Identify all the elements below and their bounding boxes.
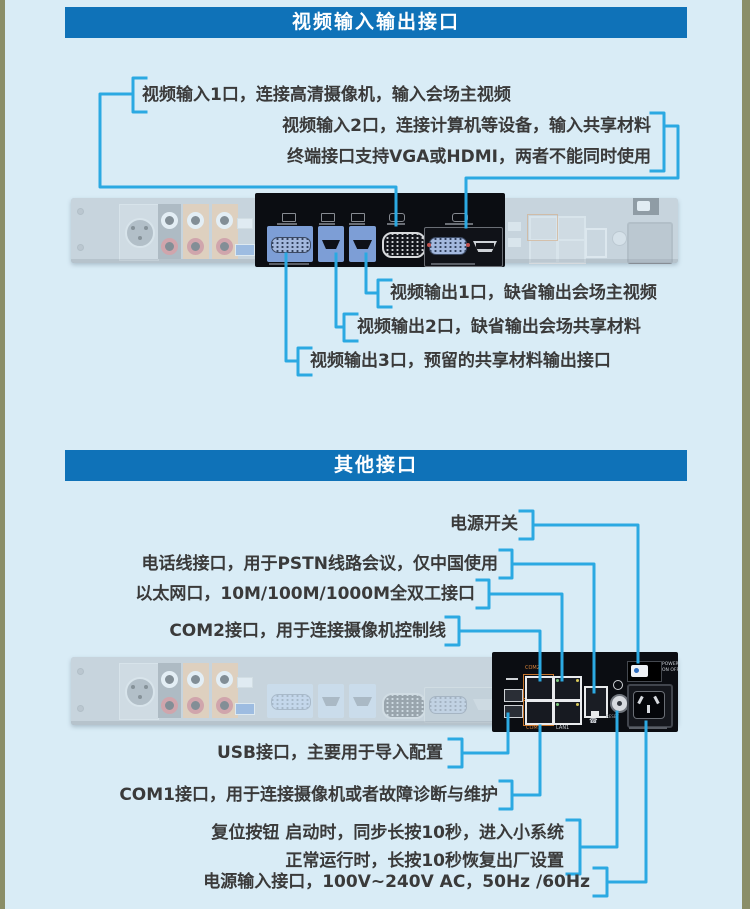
callout-label-ethernet: 以太网口，10M/100M/1000M全双工接口	[135, 584, 475, 604]
video-in-group	[424, 227, 503, 267]
vga-port-icon	[271, 237, 311, 253]
prong	[653, 696, 659, 704]
port-micro-label	[629, 727, 667, 729]
link-led	[556, 679, 559, 682]
rear-panel-photo-1	[71, 198, 678, 263]
other-io-highlight-block: COM2 COM1 LAN1 ☎ RESET	[492, 652, 678, 732]
bracket-power-input	[594, 868, 607, 896]
power-switch-icon	[627, 661, 662, 682]
lan-rj45-port-icon	[553, 676, 582, 701]
line-video-out-3	[286, 254, 298, 361]
rj11-phone-port-icon	[584, 686, 608, 718]
callout-label-usb: USB接口，主要用于导入配置	[217, 743, 443, 763]
callout-label-video-in-2-line2: 终端接口支持VGA或HDMI，两者不能同时使用	[282, 142, 651, 173]
rj11-tab	[591, 711, 599, 716]
rj45-port-icon	[553, 700, 582, 725]
lan-port-label: LAN1	[556, 725, 569, 731]
left-edge-stripe	[0, 0, 5, 909]
callout-label-video-out-1: 视频输出1口，缺省输出会场主视频	[390, 283, 657, 303]
usb-port-icon	[504, 689, 523, 702]
vga-screw	[427, 243, 431, 247]
display-icon	[282, 213, 296, 222]
power-inlet-icon	[627, 684, 673, 728]
hdmi-out-tile-1	[318, 226, 344, 262]
prong	[637, 696, 643, 704]
bracket-video-in-2	[651, 113, 664, 171]
display-icon	[321, 213, 335, 222]
hdmi-out-tile-2	[349, 226, 376, 262]
rocker-dot	[634, 668, 639, 673]
port-micro-label	[431, 263, 475, 265]
camera-icon	[389, 213, 405, 222]
hdmi-port-icon	[353, 240, 372, 249]
bracket-com2	[446, 617, 459, 645]
reset-dot	[617, 701, 622, 706]
bracket-reset	[567, 820, 580, 874]
com2-rj45-port-icon	[525, 676, 554, 701]
callout-label-video-in-2: 视频输入2口，连接计算机等设备，输入共享材料 终端接口支持VGA或HDMI，两者…	[282, 111, 651, 173]
vga-screw	[466, 243, 470, 247]
vga-in-port-icon	[429, 237, 467, 255]
port-micro-label	[269, 263, 309, 265]
reset-label: RESET	[606, 714, 619, 720]
com2-port-label: COM2	[525, 665, 540, 671]
section1-header: 视频输入输出接口	[65, 7, 687, 38]
hdmi-in-port-icon	[473, 241, 497, 252]
activity-led	[576, 703, 579, 706]
callout-label-video-out-3: 视频输出3口，预留的共享材料输出接口	[310, 351, 611, 371]
line-reset	[581, 712, 617, 847]
rocker	[631, 665, 648, 677]
activity-led	[576, 679, 579, 682]
callout-label-power-input: 电源输入接口，100V~240V AC，50Hz /60Hz	[203, 872, 590, 892]
reset-icon	[613, 680, 623, 690]
usb-port-icon	[504, 705, 523, 718]
com1-port-label: COM1	[526, 725, 541, 731]
port-micro-label	[387, 223, 405, 225]
port-micro-label	[277, 223, 297, 225]
page: 视频输入输出接口 其他接口 视频输入1口，连接高清摄像机，输入会场主视频 视频输…	[0, 0, 750, 909]
hdmi-inner	[476, 243, 494, 249]
power-switch-label-line2: ON OFF	[662, 668, 679, 674]
hdmi-port-icon	[322, 240, 340, 249]
callout-label-video-in-1: 视频输入1口，连接高清摄像机，输入会场主视频	[142, 85, 511, 105]
callout-label-com2: COM2接口，用于连接摄像机控制线	[169, 621, 446, 641]
bracket-com1	[500, 781, 512, 809]
link-led	[556, 703, 559, 706]
line-power-input	[608, 722, 646, 882]
callout-label-reset-line2: 正常运行时，长按10秒恢复出厂设置	[211, 847, 564, 875]
callout-label-video-out-2: 视频输出2口，缺省输出会场共享材料	[357, 317, 641, 337]
line-power-switch	[533, 525, 638, 662]
right-edge-stripe	[742, 0, 750, 909]
vga-out-tile	[267, 226, 313, 262]
camera-icon	[452, 213, 468, 222]
c14-socket	[633, 691, 665, 719]
bracket-usb	[449, 739, 462, 767]
bracket-ethernet	[477, 580, 489, 608]
callout-label-video-in-2-line1: 视频输入2口，连接计算机等设备，输入共享材料	[282, 111, 651, 142]
port-micro-label	[349, 223, 365, 225]
rear-panel-photo-2: COM2 COM1 LAN1 ☎ RESET	[71, 657, 678, 725]
video-io-highlight-block	[255, 193, 505, 267]
phone-icon: ☎	[589, 718, 598, 724]
callout-label-com1: COM1接口，用于连接摄像机或者故障诊断与维护	[119, 785, 498, 805]
power-switch-label: POWER ON OFF	[662, 662, 679, 674]
com1-rj45-port-icon	[525, 700, 554, 725]
usb-icon	[506, 678, 518, 680]
callout-label-power-switch: 电源开关	[450, 514, 518, 534]
section2-header: 其他接口	[65, 450, 687, 481]
bracket-power-switch	[520, 511, 533, 539]
prong	[647, 705, 650, 713]
bracket-video-out-2	[344, 314, 357, 341]
port-micro-label	[319, 223, 335, 225]
line-com1	[513, 726, 540, 795]
bracket-phone-line	[500, 550, 512, 578]
dvi-port-icon	[382, 232, 426, 258]
callout-label-reset-line1: 复位按钮 启动时，同步长按10秒，进入小系统	[211, 819, 564, 847]
port-micro-label	[445, 223, 473, 225]
display-icon	[351, 213, 365, 222]
callout-label-reset: 复位按钮 启动时，同步长按10秒，进入小系统 正常运行时，长按10秒恢复出厂设置	[211, 819, 564, 875]
callout-label-phone-line: 电话线接口，用于PSTN线路会议，仅中国使用	[141, 554, 498, 574]
